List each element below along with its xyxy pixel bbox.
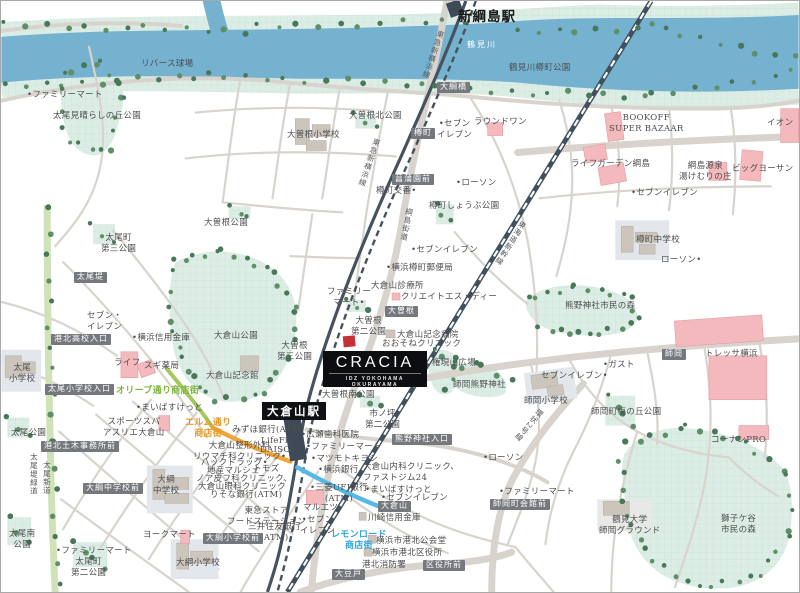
greenway-futoo-tsutsumi	[47, 205, 55, 592]
property-marker-cracia: CRACIA IDZ YOKOHAMA OKURAYAMA	[323, 351, 427, 387]
property-building-marker	[343, 335, 356, 347]
street-elm-dori	[213, 428, 291, 462]
building-kinenkan	[241, 356, 259, 372]
road-kanjo-2	[492, 384, 584, 592]
park-okurayama	[169, 252, 296, 402]
public-buildings	[5, 119, 657, 569]
property-name: CRACIA	[323, 354, 427, 372]
area-map: CRACIA IDZ YOKOHAMA OKURAYAMA リバース球場•ファミ…	[0, 0, 800, 593]
map-canvas	[1, 1, 799, 592]
building-tressa-south	[709, 356, 767, 400]
property-subtitle: IDZ YOKOHAMA OKURAYAMA	[329, 373, 421, 388]
